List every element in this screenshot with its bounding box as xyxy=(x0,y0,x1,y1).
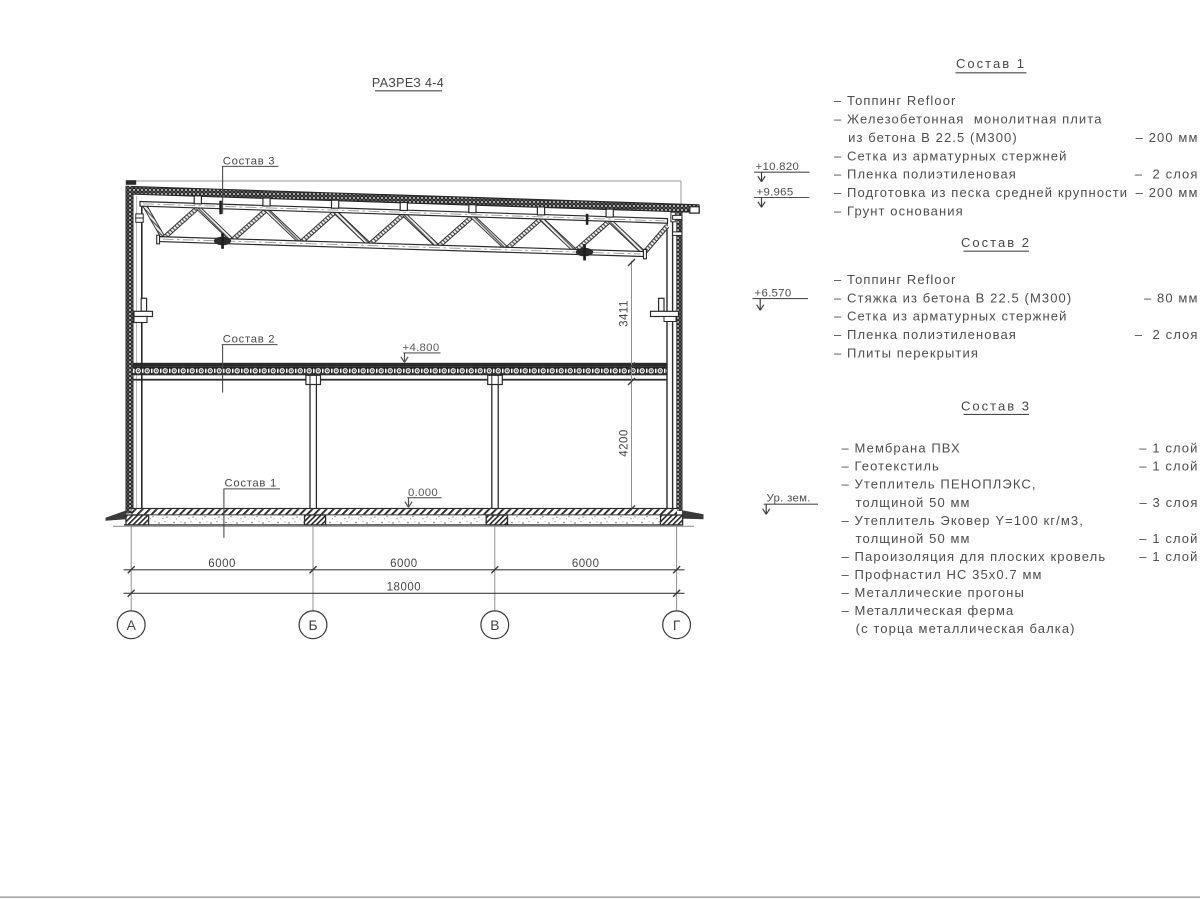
svg-text:– Пароизоляция для плоских кро: – Пароизоляция для плоских кровель xyxy=(842,549,1107,564)
svg-text:– 1 слой: – 1 слой xyxy=(1139,549,1198,564)
svg-text:В: В xyxy=(490,618,499,633)
svg-text:– Пленка полиэтиленовая: – Пленка полиэтиленовая xyxy=(834,327,1017,342)
svg-text:– 1 слой: – 1 слой xyxy=(1139,459,1198,474)
svg-text:+9.965: +9.965 xyxy=(757,186,794,198)
svg-text:18000: 18000 xyxy=(387,581,421,593)
svg-text:– Стяжка из бетона В 22.5 (М30: – Стяжка из бетона В 22.5 (М300) xyxy=(834,290,1072,305)
svg-text:– 3 слоя: – 3 слоя xyxy=(1140,495,1199,510)
svg-text:6000: 6000 xyxy=(572,558,600,570)
svg-text:– Геотекстиль: – Геотекстиль xyxy=(842,459,940,474)
svg-text:– Грунт основания: – Грунт основания xyxy=(834,204,964,219)
svg-text:6000: 6000 xyxy=(208,558,236,570)
svg-text:6000: 6000 xyxy=(390,558,418,570)
svg-text:– 200 мм: – 200 мм xyxy=(1136,130,1199,145)
svg-text:Состав 3: Состав 3 xyxy=(223,155,275,167)
svg-text:– Подготовка из песка средней: – Подготовка из песка средней крупности xyxy=(834,185,1128,200)
svg-text:– 80 мм: – 80 мм xyxy=(1144,290,1199,305)
svg-text:Состав 3: Состав 3 xyxy=(961,399,1031,414)
svg-text:– Металлическая ферма: – Металлическая ферма xyxy=(842,603,1015,618)
svg-text:+4.800: +4.800 xyxy=(403,342,440,354)
svg-text:Состав 1: Состав 1 xyxy=(956,56,1026,71)
svg-text:+10.820: +10.820 xyxy=(756,161,800,173)
svg-text:– 1 слой: – 1 слой xyxy=(1139,531,1198,546)
svg-text:+6.570: +6.570 xyxy=(755,287,792,299)
svg-text:Состав 2: Состав 2 xyxy=(961,235,1031,250)
svg-text:Состав 1: Состав 1 xyxy=(225,478,277,490)
svg-text:– 1 слой: – 1 слой xyxy=(1139,441,1198,456)
svg-text:(с торца металлическая балка): (с торца металлическая балка) xyxy=(842,621,1076,636)
svg-text:А: А xyxy=(127,618,137,633)
svg-text:4200: 4200 xyxy=(619,429,631,457)
svg-text:– 2 слоя: – 2 слоя xyxy=(1135,327,1199,342)
svg-text:– Сетка из арматурных стержней: – Сетка из арматурных стержней xyxy=(834,309,1067,324)
svg-text:Б: Б xyxy=(308,618,317,633)
svg-text:– 2 слоя: – 2 слоя xyxy=(1135,167,1199,182)
svg-text:Состав 2: Состав 2 xyxy=(223,333,275,345)
svg-text:3411: 3411 xyxy=(619,300,631,327)
svg-text:– Сетка из арматурных стержней: – Сетка из арматурных стержней xyxy=(834,148,1067,163)
svg-text:– Профнастил НС 35х0.7 мм: – Профнастил НС 35х0.7 мм xyxy=(842,567,1043,582)
svg-text:– Топпинг Refloor: – Топпинг Refloor xyxy=(834,93,956,108)
svg-text:– Утеплитель Эковер Y=100 кг/м: – Утеплитель Эковер Y=100 кг/м3, xyxy=(842,513,1084,528)
svg-text:– Металлические прогоны: – Металлические прогоны xyxy=(842,585,1025,600)
svg-text:Г: Г xyxy=(673,618,681,633)
svg-text:толщиной 50 мм: толщиной 50 мм xyxy=(842,495,971,510)
svg-text:– Железобетонная монолитная п: – Железобетонная монолитная плита xyxy=(834,112,1103,127)
svg-text:РАЗРЕЗ 4-4: РАЗРЕЗ 4-4 xyxy=(372,76,444,90)
svg-text:толщиной 50 мм: толщиной 50 мм xyxy=(842,531,971,546)
svg-text:– Пленка полиэтиленовая: – Пленка полиэтиленовая xyxy=(834,167,1017,182)
svg-text:из бетона В 22.5 (М300): из бетона В 22.5 (М300) xyxy=(834,130,1018,145)
svg-text:– 200 мм: – 200 мм xyxy=(1136,185,1199,200)
svg-text:0.000: 0.000 xyxy=(408,487,438,499)
svg-text:– Мембрана ПВХ: – Мембрана ПВХ xyxy=(842,441,961,456)
svg-text:– Плиты перекрытия: – Плиты перекрытия xyxy=(834,346,979,361)
svg-text:– Утеплитель ПЕНОПЛЭКС,: – Утеплитель ПЕНОПЛЭКС, xyxy=(842,477,1037,492)
svg-text:– Топпинг Refloor: – Топпинг Refloor xyxy=(834,272,956,287)
svg-text:Ур. зем.: Ур. зем. xyxy=(767,493,811,505)
